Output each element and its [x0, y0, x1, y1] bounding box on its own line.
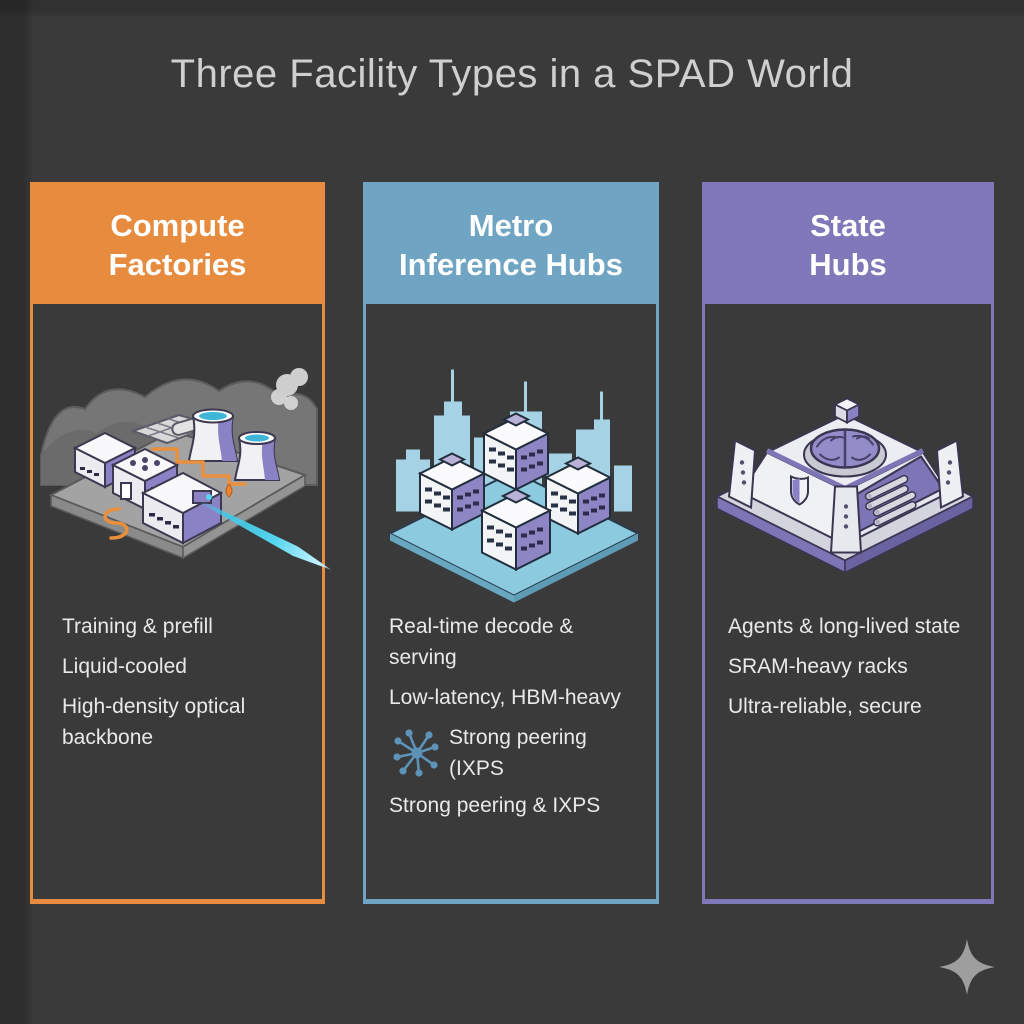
bullet-item: Agents & long-lived state	[728, 611, 981, 642]
compute-factory-illustration	[33, 335, 322, 607]
bullet-item: Real-time decode & serving	[389, 611, 646, 673]
metro-hub-illustration	[366, 340, 656, 605]
header-line: State	[810, 206, 886, 245]
network-hub-icon	[389, 725, 445, 781]
page-title: Three Facility Types in a SPAD World	[0, 52, 1024, 97]
bullet-item-with-icon: Strong peering (IXPS	[389, 722, 646, 784]
header-line: Compute	[110, 206, 244, 245]
panel-header-metro-inference-hubs: Metro Inference Hubs	[366, 185, 656, 304]
bullet-item: High-density optical backbone	[62, 691, 308, 753]
panel-header-state-hubs: State Hubs	[705, 185, 991, 304]
bullet-item: Liquid-cooled	[62, 651, 308, 682]
bullet-item: SRAM-heavy racks	[728, 651, 981, 682]
header-line: Inference Hubs	[399, 245, 623, 284]
bullet-item-label: Strong peering (IXPS	[449, 722, 646, 784]
bullet-item: Low-latency, HBM-heavy	[389, 682, 646, 713]
header-line: Metro	[469, 206, 553, 245]
panel-metro-inference-hubs: Metro Inference Hubs	[363, 182, 659, 904]
panel-state-hubs: State Hubs	[702, 182, 994, 904]
panel-header-compute-factories: Compute Factories	[33, 185, 322, 304]
sparkle-icon	[937, 937, 997, 997]
header-line: Hubs	[809, 245, 887, 284]
bullet-item: Strong peering & IXPS	[389, 790, 646, 821]
bullet-item: Ultra-reliable, secure	[728, 691, 981, 722]
bullet-item: Training & prefill	[62, 611, 308, 642]
header-line: Factories	[109, 245, 247, 284]
state-hub-illustration	[705, 355, 991, 590]
